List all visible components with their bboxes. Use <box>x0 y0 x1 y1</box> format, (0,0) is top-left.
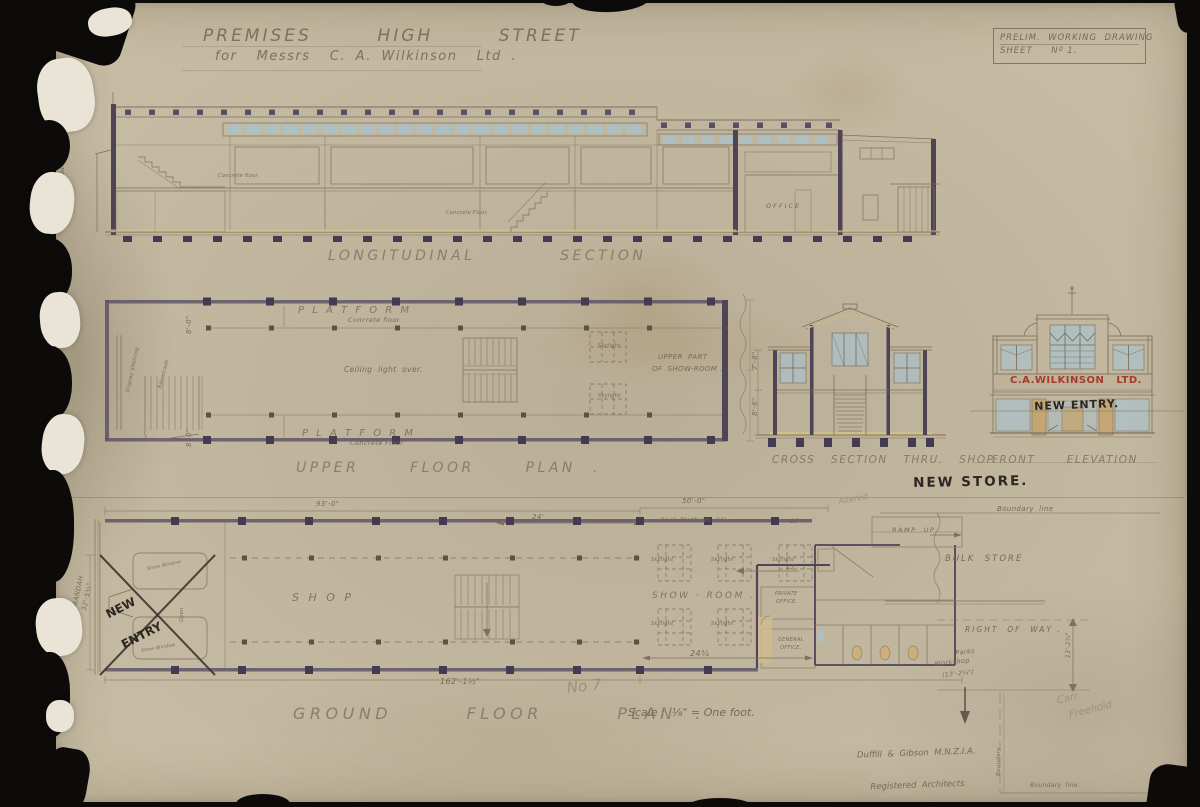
new-store-annotation: NEW STORE. <box>913 474 1029 491</box>
boundary-line-bottom-label: Boundary line. <box>1030 783 1080 790</box>
sheet-title-line1: PREMISES HIGH STREET <box>203 27 582 46</box>
long-section-concrete-floor-mid: Concrete Floor. <box>446 211 488 217</box>
ground-skylight-label: Skylight <box>711 558 734 564</box>
ground-back-platform-label: Back Platform 26' <box>660 517 727 524</box>
ground-dim-13: 13' <box>790 518 801 525</box>
private-office-line1: PRIVATE <box>775 592 797 598</box>
ground-dim-12: 12' <box>786 564 797 571</box>
upper-skylight-label-b: Skylight <box>598 394 621 400</box>
scanned-drawing-sheet: PREMISES HIGH STREET for Messrs C. A. Wi… <box>0 0 1200 807</box>
torn-edge-bite <box>28 120 70 172</box>
ground-skylight-label: Skylight <box>651 558 674 564</box>
ground-new-entry-line2: ENTRY <box>120 621 164 651</box>
pencil-no7-annotation: No 7 <box>566 676 602 696</box>
torn-notch-bottom <box>688 798 752 807</box>
upper-platform-bottom-sub: Concrete Floor. <box>350 440 405 447</box>
ground-dim-13-2: 13'-2¼" <box>1066 632 1073 658</box>
right-of-way-label: RIGHT OF WAY . <box>965 626 1062 634</box>
long-section-concrete-floor-left: Concrete floor. <box>218 174 259 180</box>
front-elevation-drawing <box>970 285 1185 455</box>
upper-floor-plan-title: UPPER FLOOR PLAN . <box>296 461 601 476</box>
architect-line1: Duffill & Gibson M.N.Z.I.A. <box>819 745 1014 762</box>
stamp-line2: SHEET Nº 1. <box>1000 45 1139 57</box>
paper-crease <box>58 497 1184 498</box>
longitudinal-section-title: LONGITUDINAL SECTION <box>328 249 646 264</box>
upper-platform-top-label: P L A T F O R M <box>298 305 412 316</box>
general-office-line2: OFFICE. <box>780 646 802 652</box>
title-guideline <box>182 46 482 47</box>
ground-dim-93: 93'-0" <box>316 501 339 509</box>
scale-note: Scale : ⅛" = One foot. <box>628 707 755 719</box>
upper-part-label-line1: UPPER PART <box>658 354 708 362</box>
cross-dim-7-8: 7'-8" <box>752 351 760 370</box>
upper-skylight-label-a: Skylight <box>598 344 621 350</box>
torn-notch-bottom <box>236 794 290 807</box>
upper-platform-bottom-label: P L A T F O R M <box>302 428 416 439</box>
cross-dim-8-6: 8'-6" <box>752 397 760 416</box>
upper-ceiling-light-label: Ceiling light over. <box>344 366 423 374</box>
torn-paper-patch <box>46 700 74 732</box>
upper-dim-8ft-bottom: 8'-0" <box>186 428 194 447</box>
ground-dim-24: 24' <box>532 514 544 522</box>
long-section-office-label: OFFICE <box>766 203 801 210</box>
ground-skylight-label: Skylight <box>711 622 734 628</box>
cross-section-drawing <box>750 295 950 460</box>
ground-new-entry-line1: NEW <box>104 590 148 620</box>
ground-dim-24-75: 24¾ <box>690 650 709 659</box>
sheet-title-line2: for Messrs C. A. Wilkinson Ltd . <box>215 50 517 64</box>
bulk-store-label: BULK STORE <box>945 555 1023 564</box>
architect-signature-block: Duffill & Gibson M.N.Z.I.A. Registered A… <box>818 724 1017 807</box>
front-elevation-title: FRONT ELEVATION <box>992 455 1138 467</box>
boundary-line-top-label: Boundary line <box>997 506 1053 514</box>
show-room-label: SHOW · ROOM . <box>652 592 755 602</box>
open-label: Open <box>180 607 186 622</box>
shop-label: S H O P <box>292 592 354 604</box>
title-block-stamp: PRELIM. WORKING DRAWING SHEET Nº 1. <box>993 28 1146 64</box>
ramp-up-label: RAMP UP <box>892 527 935 534</box>
upper-part-label-line2: OF SHOW-ROOM . <box>652 366 722 374</box>
stamp-line1: PRELIM. WORKING DRAWING <box>1000 32 1139 45</box>
ground-dim-162: 162'-1½" <box>440 678 480 687</box>
private-office-line2: OFFICE. <box>776 600 798 606</box>
architect-line2: Registered Architects <box>820 777 1015 794</box>
title-guideline <box>182 70 482 71</box>
general-office-line1: GENERAL <box>778 638 804 644</box>
ground-skylight-label: Skylight <box>651 622 674 628</box>
ground-dim-50: 50'-0" <box>682 498 705 506</box>
torn-edge-bite <box>28 346 72 420</box>
shop-fascia-sign: C.A.WILKINSON LTD. <box>1002 375 1150 386</box>
upper-platform-top-sub: Concrete floor. <box>348 317 402 324</box>
upper-dim-8ft-top: 8'-0" <box>186 315 194 334</box>
cross-section-title: CROSS SECTION THRU. SHOP. <box>772 455 998 467</box>
torn-edge-bite <box>30 470 74 582</box>
ground-floor-plan-drawing <box>85 505 1190 805</box>
